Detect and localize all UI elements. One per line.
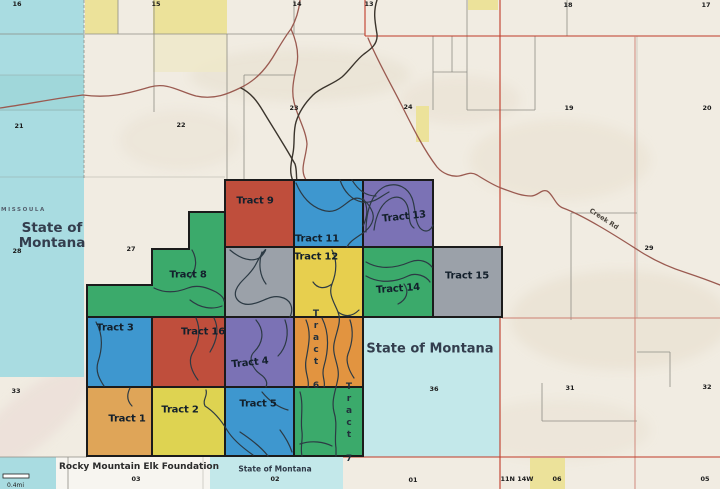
water-bottom-left — [0, 457, 56, 489]
tract-11-area[interactable] — [294, 180, 363, 247]
yellow-parcel-2 — [153, 0, 227, 34]
tract-12-area[interactable] — [294, 247, 363, 317]
water-bottom-mid — [210, 457, 343, 489]
tract-2-area[interactable] — [152, 387, 225, 456]
tract-16-area[interactable] — [152, 317, 225, 387]
yellow-parcel-2b — [153, 34, 227, 72]
map-canvas[interactable]: 16 15 14 13 18 17 21 22 23 24 19 20 28 2… — [0, 0, 720, 489]
tract-5-area[interactable] — [225, 387, 294, 456]
water-region-36 — [363, 317, 500, 457]
scale-bar — [3, 474, 29, 478]
tract-1-area[interactable] — [87, 387, 152, 456]
yellow-parcel-1 — [85, 0, 118, 34]
tract-4-area[interactable] — [225, 317, 294, 387]
water-left-column — [0, 0, 84, 377]
tract-14-area[interactable] — [363, 247, 433, 317]
band-white — [56, 457, 210, 489]
tract-15-area[interactable] — [433, 247, 502, 317]
tract-3-area[interactable] — [87, 317, 152, 387]
tract-7-area[interactable] — [294, 387, 363, 456]
yellow-parcel-4 — [468, 0, 498, 10]
map-graphics — [0, 0, 720, 489]
tract-9-area[interactable] — [225, 180, 294, 247]
yellow-parcel-5 — [530, 458, 565, 489]
